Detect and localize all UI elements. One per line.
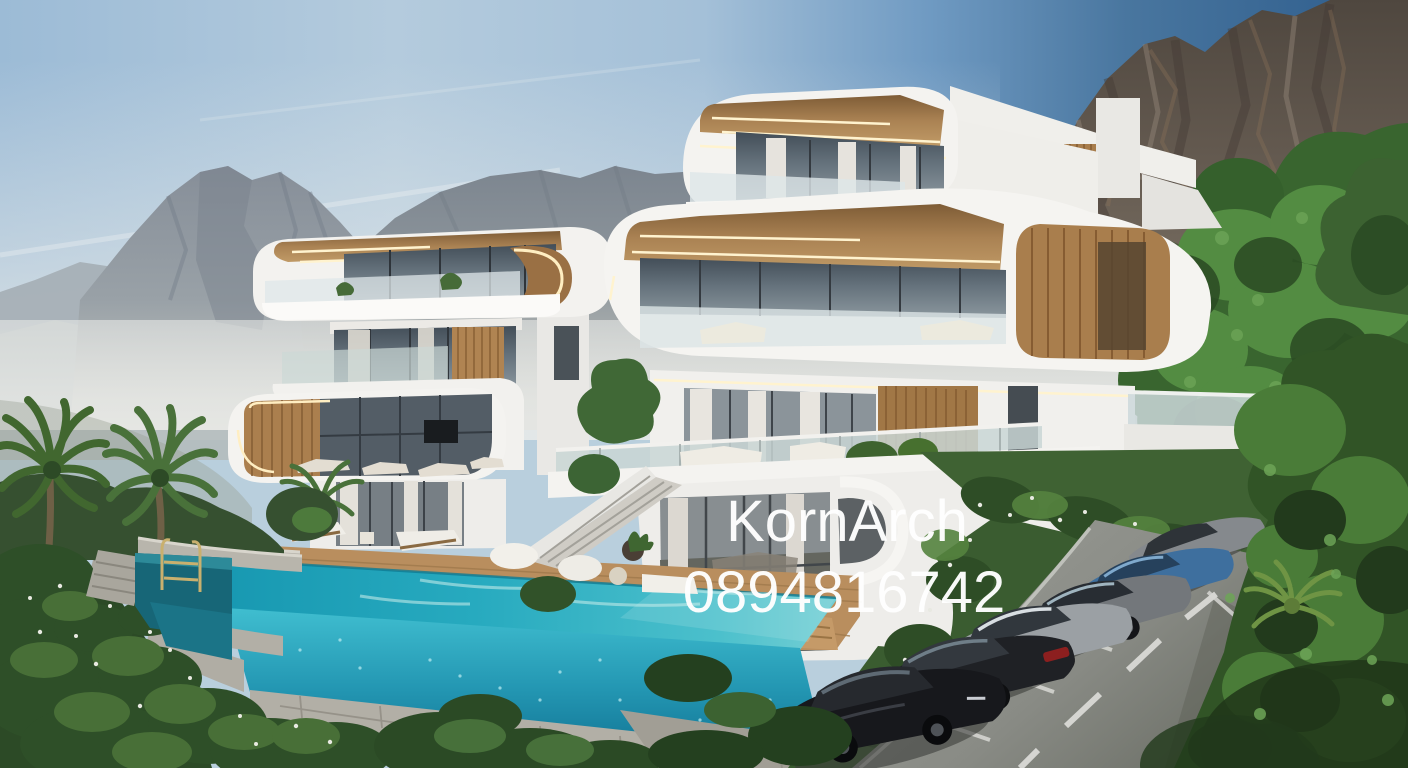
svg-text:0894816742: 0894816742 xyxy=(683,560,1006,625)
svg-text:KornArch: KornArch xyxy=(726,489,968,554)
